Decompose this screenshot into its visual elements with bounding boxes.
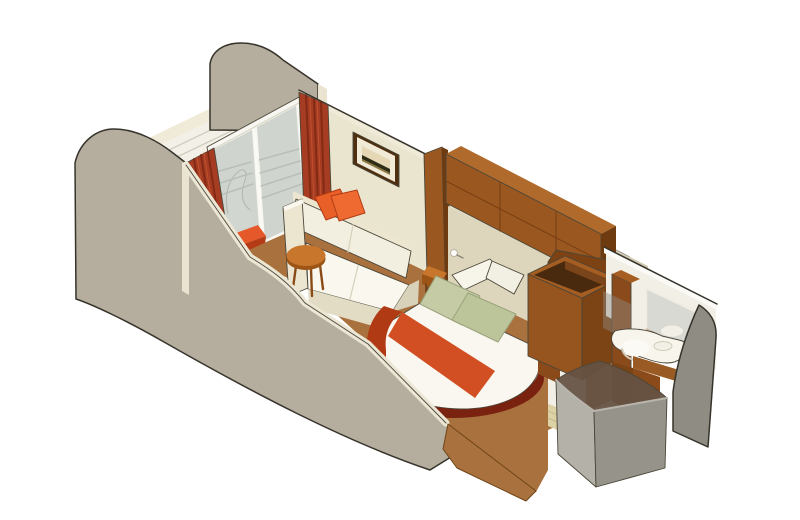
coffee-table-top [287, 245, 326, 266]
mirror-sink-reflection [661, 326, 683, 337]
near-partition-edge [182, 162, 189, 295]
stateroom-cutaway-illustration [0, 0, 800, 520]
reading-lamp [451, 250, 458, 257]
cabin-illustration [0, 0, 800, 520]
counter-basin-rim [654, 342, 672, 351]
